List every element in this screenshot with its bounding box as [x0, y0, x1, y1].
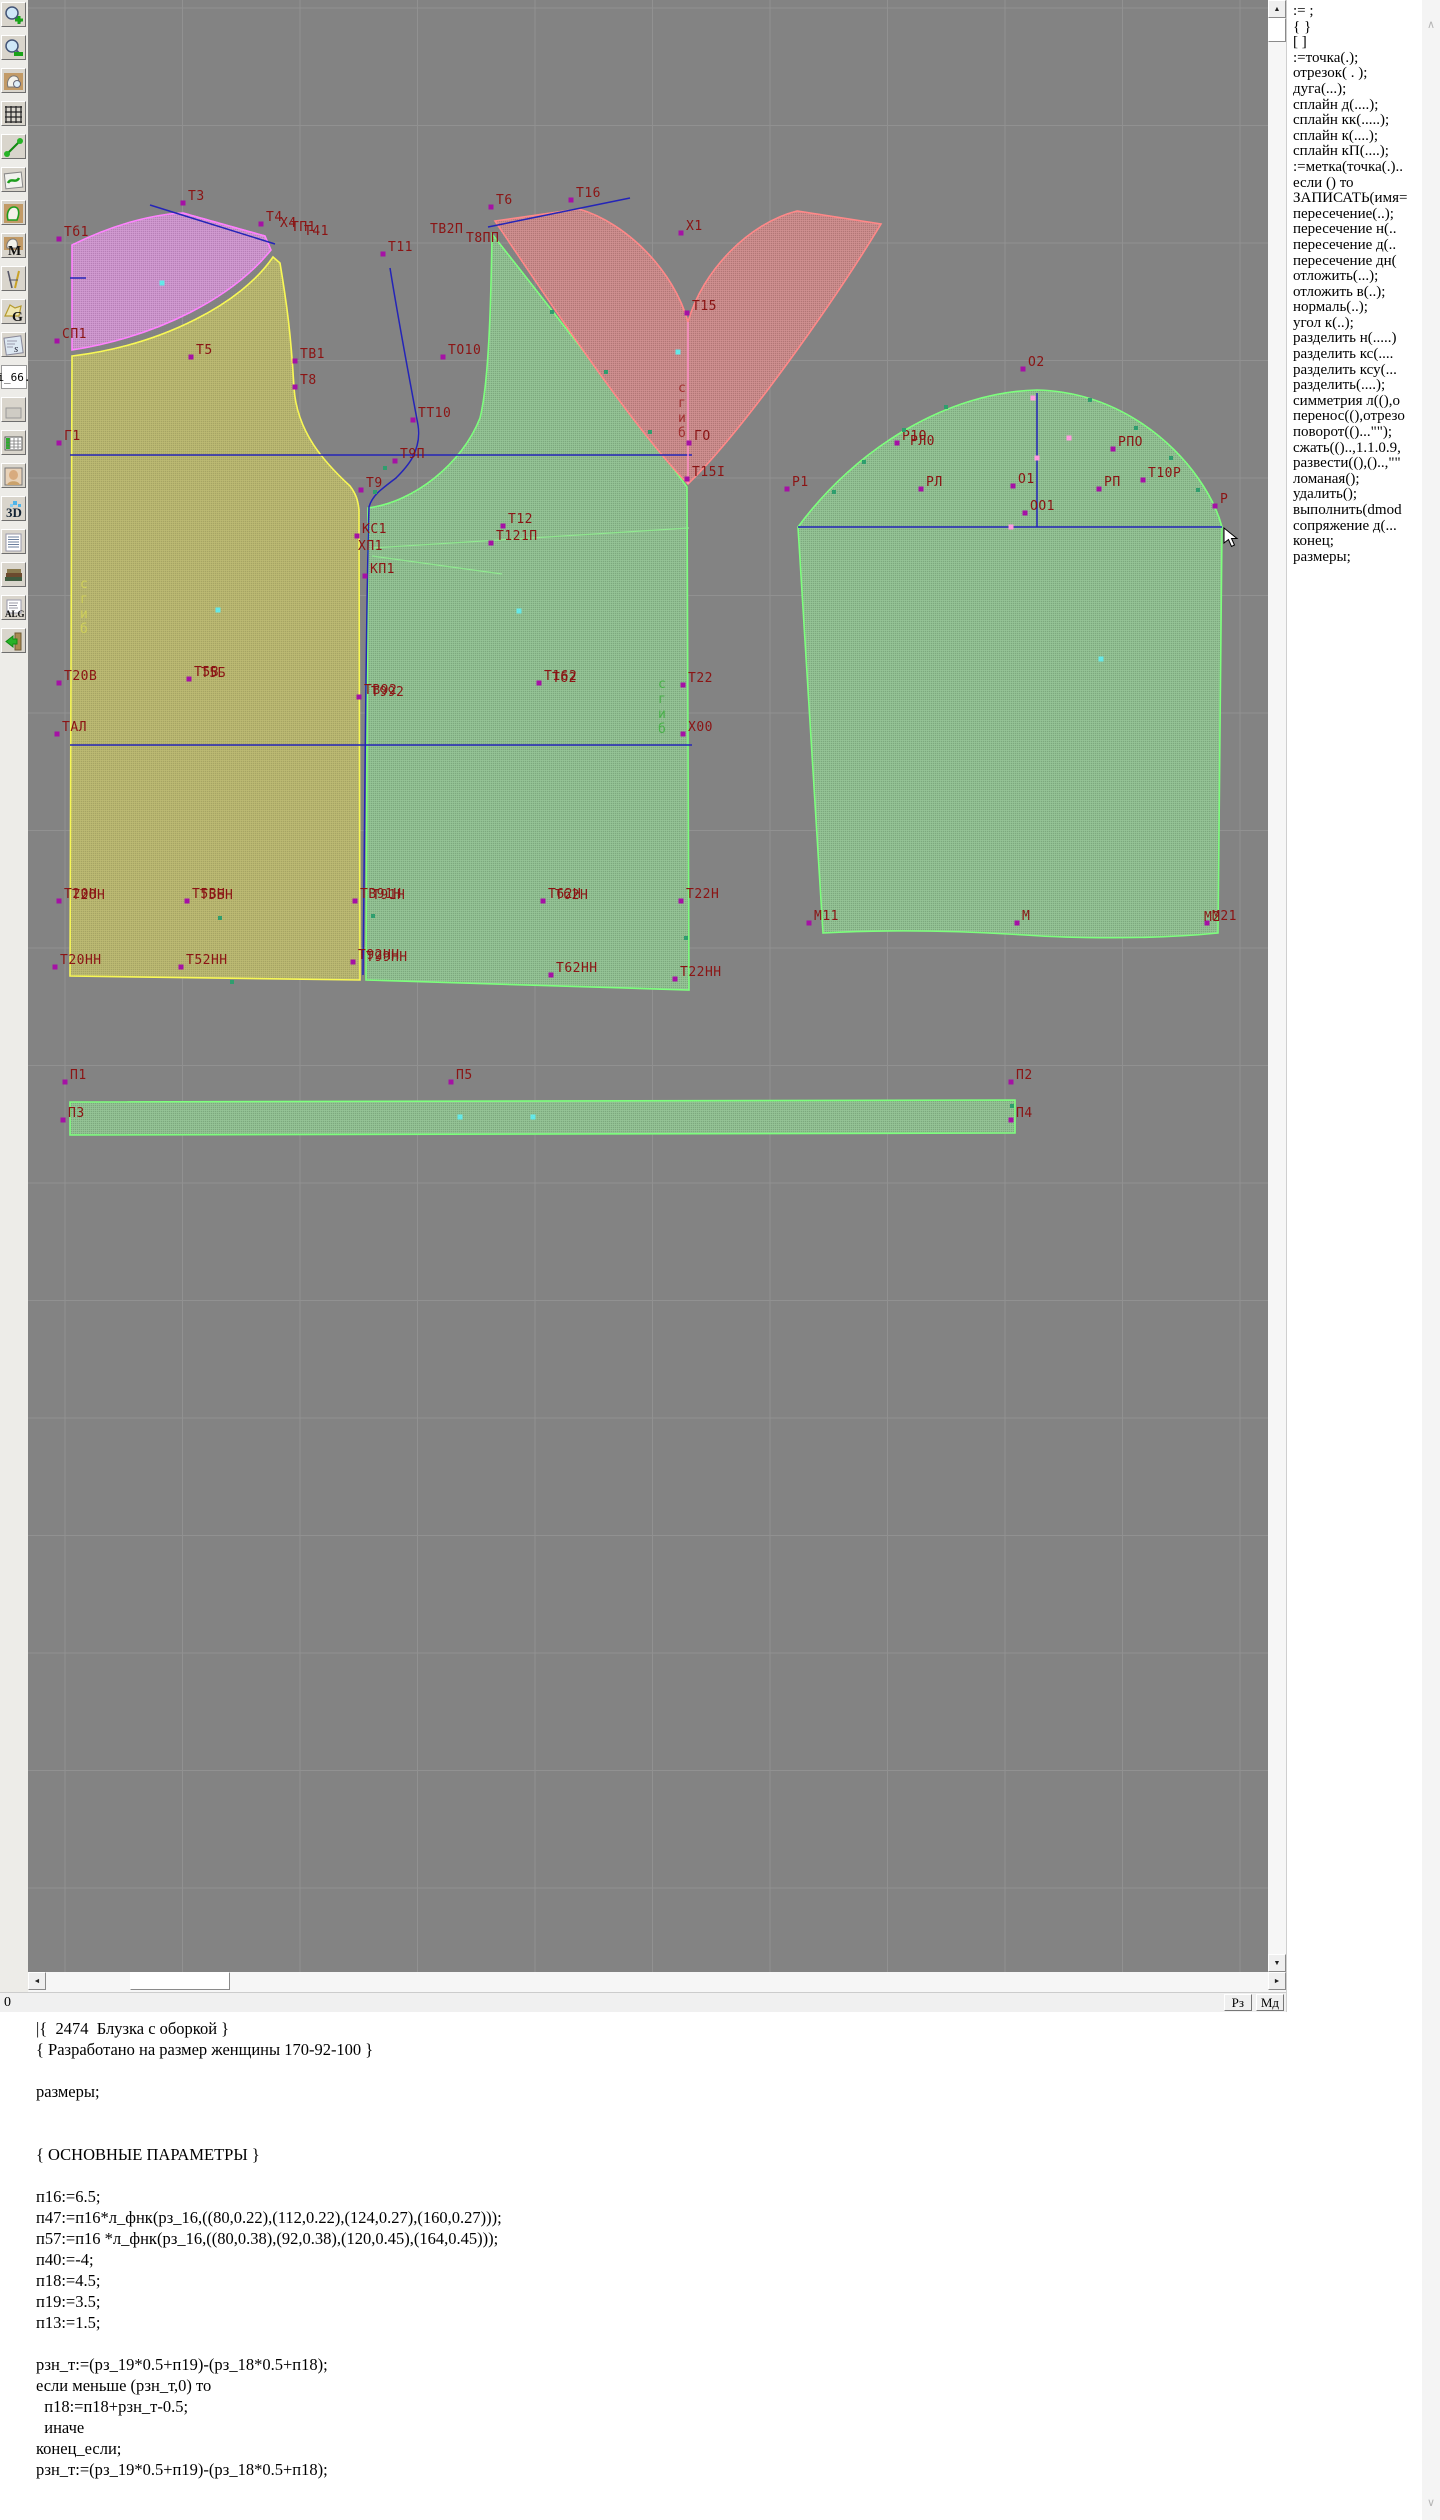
app-window: { "colors":{ "canvas_bg":"#838383","grid… [0, 0, 1440, 2520]
point-marker [807, 921, 812, 926]
point-marker [687, 441, 692, 446]
svg-text:3D: 3D [6, 505, 22, 520]
point-marker [673, 977, 678, 982]
point-marker [676, 350, 681, 355]
point-marker [1021, 367, 1026, 372]
point-label: Т15 [692, 299, 717, 314]
command-item[interactable]: перенос((),отрезо [1293, 409, 1422, 425]
point-label: Т5Б [201, 666, 226, 681]
command-item[interactable]: { } [1293, 20, 1422, 36]
point-label: Т9 [366, 476, 383, 491]
vscroll-thumb[interactable] [1268, 18, 1286, 42]
point-marker [458, 1115, 463, 1120]
code-line: п18:=п18+рзн_т-0.5; [36, 2396, 1422, 2417]
point-marker [1213, 504, 1218, 509]
point-marker [218, 916, 222, 920]
point-label: Т11 [388, 240, 413, 255]
fold-label: сгиб [80, 577, 88, 637]
point-marker [373, 490, 377, 494]
code-line: иначе [36, 2417, 1422, 2438]
point-label: Т8 [300, 373, 317, 388]
chevron-up-icon[interactable]: ∧ [1422, 18, 1440, 31]
toolbar-index-label: i_66. [1, 365, 27, 389]
point-label: ТАЛ [62, 720, 87, 735]
command-item[interactable]: развести((),()..,"" [1293, 456, 1422, 472]
code-line [36, 2165, 1422, 2186]
toolbar-button-measure-icon[interactable] [1, 134, 26, 159]
code-line: конец_если; [36, 2438, 1422, 2459]
command-item[interactable]: выполнить(dmod [1293, 503, 1422, 519]
point-marker [293, 359, 298, 364]
code-line: размеры; [36, 2081, 1422, 2102]
point-marker [1169, 456, 1173, 460]
point-label: ТВ1 [300, 347, 325, 362]
toolbar-button-portrait-icon[interactable] [1, 463, 26, 488]
toolbar-button-ruler-s-icon[interactable]: s [1, 332, 26, 357]
point-marker [919, 487, 924, 492]
piece-ruffle-strip[interactable] [70, 1100, 1015, 1135]
point-label: Т9П [400, 447, 425, 462]
point-label: П3 [68, 1106, 85, 1121]
point-marker [449, 1080, 454, 1085]
point-marker [1009, 1118, 1014, 1123]
point-marker [187, 677, 192, 682]
mouse-cursor-icon [1224, 528, 1237, 547]
command-item[interactable]: [ ] [1293, 35, 1422, 51]
toolbar-button-pattern-sheet-icon[interactable] [1, 68, 26, 93]
point-marker [1023, 511, 1028, 516]
point-marker [55, 339, 60, 344]
code-editor[interactable]: |{ 2474 Блузка с оборкой }{ Разработано … [0, 2012, 1422, 2520]
point-marker [1099, 657, 1104, 662]
point-marker [685, 477, 690, 482]
command-item[interactable]: отложить(...); [1293, 269, 1422, 285]
canvas-hscrollbar[interactable]: ◄ ► [28, 1972, 1286, 1992]
command-item[interactable]: пересечение д(.. [1293, 238, 1422, 254]
point-marker [55, 732, 60, 737]
point-label: ТВ2П [430, 222, 463, 237]
point-marker [353, 899, 358, 904]
status-value: 0 [4, 1995, 11, 2011]
command-item[interactable]: сплайн кП(....); [1293, 144, 1422, 160]
command-item[interactable]: нормаль(..); [1293, 300, 1422, 316]
point-marker [1015, 921, 1020, 926]
point-label: Т52НН [186, 953, 228, 968]
code-line: п16:=6.5; [36, 2186, 1422, 2207]
point-marker [681, 732, 686, 737]
command-item[interactable]: отложить в(..); [1293, 285, 1422, 301]
code-line [36, 2060, 1422, 2081]
point-marker [1134, 426, 1138, 430]
point-label: П4 [1016, 1106, 1033, 1121]
command-item[interactable]: поворот(()...""); [1293, 425, 1422, 441]
point-label: Р1 [792, 475, 809, 490]
command-item[interactable]: симметрия л((),о [1293, 394, 1422, 410]
panel-scrollbar[interactable]: ∧ ∨ [1422, 0, 1440, 2520]
point-marker [383, 466, 387, 470]
point-marker [537, 681, 542, 686]
point-marker [1009, 525, 1014, 530]
point-label: Т16 [576, 186, 601, 201]
point-label: Т20В [64, 669, 97, 684]
point-label: П2 [1016, 1068, 1033, 1083]
point-label: Т41 [304, 224, 329, 239]
point-marker [1196, 488, 1200, 492]
point-label: Т992 [371, 685, 404, 700]
scroll-right-icon[interactable]: ► [1268, 1972, 1286, 1990]
point-label: ХП1 [358, 539, 383, 554]
code-line: { Разработано на размер женщины 170-92-1… [36, 2039, 1422, 2060]
point-marker [1031, 396, 1036, 401]
point-label: Т12 [508, 512, 533, 527]
code-line: п57:=п16 *л_фнк(рз_16,((80,0.38),(92,0.3… [36, 2228, 1422, 2249]
command-item[interactable]: отрезок( . ); [1293, 66, 1422, 82]
point-marker [1097, 487, 1102, 492]
piece-back-bodice[interactable] [70, 257, 360, 980]
toolbar: MGsi_66.3DALG [1, 2, 28, 661]
point-marker [550, 310, 554, 314]
scroll-down-icon[interactable]: ▼ [1268, 1954, 1286, 1972]
command-item[interactable]: удалить(); [1293, 487, 1422, 503]
point-marker [57, 441, 62, 446]
code-line: п18:=4.5; [36, 2270, 1422, 2291]
point-marker [944, 405, 948, 409]
command-item[interactable]: разделить кс(.... [1293, 347, 1422, 363]
command-item[interactable]: пересечение(..); [1293, 207, 1422, 223]
code-line: |{ 2474 Блузка с оборкой } [36, 2018, 1422, 2039]
point-label: Т62НН [556, 961, 598, 976]
point-label: Х1 [686, 219, 703, 234]
point-marker [1067, 436, 1072, 441]
point-label: ТТ10 [418, 406, 451, 421]
toolbar-button-alg-icon[interactable]: ALG [1, 595, 26, 620]
point-label: П1 [70, 1068, 87, 1083]
point-label: Т15І [692, 465, 725, 480]
point-label: ОО1 [1030, 499, 1055, 514]
point-label: ГО [694, 429, 711, 444]
point-marker [685, 311, 690, 316]
command-item[interactable]: :=точка(.); [1293, 51, 1422, 67]
point-marker [785, 487, 790, 492]
point-label: Т2ОН [72, 888, 105, 903]
point-marker [381, 252, 386, 257]
fold-label: сгиб [678, 381, 686, 441]
svg-text:G: G [12, 310, 23, 323]
point-label: РПО [1118, 435, 1143, 450]
point-label: М [1022, 909, 1030, 924]
point-marker [501, 524, 506, 529]
code-line: рзн_т:=(рз_19*0.5+п19)-(рз_18*0.5+п18); [36, 2354, 1422, 2375]
point-marker [1011, 484, 1016, 489]
point-label: РП [1104, 475, 1121, 490]
scroll-left-icon[interactable]: ◄ [28, 1972, 46, 1990]
point-label: Тб1 [64, 225, 89, 240]
point-marker [648, 430, 652, 434]
code-line [36, 2333, 1422, 2354]
point-marker [61, 1118, 66, 1123]
point-marker [1010, 1104, 1014, 1108]
point-marker [185, 899, 190, 904]
point-marker [517, 609, 522, 614]
point-marker [355, 534, 360, 539]
mode-button-Рз[interactable]: Рз [1224, 1994, 1252, 2011]
code-line: п13:=1.5; [36, 2312, 1422, 2333]
point-marker [1111, 447, 1116, 452]
point-marker [681, 683, 686, 688]
point-marker [259, 222, 264, 227]
point-label: Х00 [688, 720, 713, 735]
point-marker [541, 899, 546, 904]
code-line: п40:=-4; [36, 2249, 1422, 2270]
point-marker [684, 936, 688, 940]
point-marker [411, 418, 416, 423]
pattern-canvas[interactable]: Т3Т4Х4ТП1Т41Т6Т16Тб1ТВ2ПТ8ППТ11Х1Т15СП1Т… [28, 0, 1268, 1972]
point-label: Т10Р [1148, 466, 1181, 481]
code-line [36, 2123, 1422, 2144]
point-label: М11 [814, 909, 839, 924]
point-marker [1088, 398, 1092, 402]
toolbar-button-table-icon[interactable] [1, 430, 26, 455]
command-item[interactable]: разделить ксу(... [1293, 363, 1422, 379]
status-bar: 0 РзМд [0, 1992, 1286, 2012]
code-line: рзн_т:=(рз_19*0.5+п19)-(рз_18*0.5+п18); [36, 2459, 1422, 2480]
svg-text:M: M [8, 244, 21, 257]
point-marker [53, 965, 58, 970]
point-marker [179, 965, 184, 970]
point-label: КС1 [362, 522, 387, 537]
point-label: М2 [1204, 910, 1221, 925]
command-item[interactable]: угол к(..); [1293, 316, 1422, 332]
point-marker [604, 370, 608, 374]
command-item[interactable]: если () то [1293, 176, 1422, 192]
point-marker [57, 681, 62, 686]
point-label: Т99НН [366, 950, 408, 965]
point-marker [549, 973, 554, 978]
point-marker [1141, 478, 1146, 483]
point-label: Т5 [196, 343, 213, 358]
point-marker [357, 695, 362, 700]
command-item[interactable]: пересечение н(.. [1293, 222, 1422, 238]
point-marker [363, 574, 368, 579]
point-marker [679, 231, 684, 236]
toolbar-button-list-icon[interactable] [1, 529, 26, 554]
point-marker [181, 201, 186, 206]
point-label: ТО10 [448, 343, 481, 358]
command-item[interactable]: пересечение дн( [1293, 254, 1422, 270]
point-marker [441, 355, 446, 360]
point-label: РЛ [926, 475, 943, 490]
point-label: Р [1220, 492, 1228, 507]
point-marker [1035, 456, 1040, 461]
point-label: Т8ПП [466, 231, 499, 246]
point-marker [359, 488, 364, 493]
point-label: Т22НН [680, 965, 722, 980]
command-item[interactable]: := ; [1293, 4, 1422, 20]
point-label: Т22Н [686, 887, 719, 902]
command-panel: := ;{ }[ ]:=точка(.);отрезок( . );дуга(.… [1286, 0, 1422, 2012]
toolbar-button-zoom-out-icon[interactable] [1, 35, 26, 60]
scroll-up-icon[interactable]: ▲ [1268, 0, 1286, 18]
command-item[interactable]: сжать(()..,1.1.0.9, [1293, 441, 1422, 457]
svg-text:ALG: ALG [5, 609, 24, 619]
point-label: Т121П [496, 529, 538, 544]
command-item[interactable]: ЗАПИСАТЬ(имя= [1293, 191, 1422, 207]
point-marker [1009, 1080, 1014, 1085]
point-label: КП1 [370, 562, 395, 577]
point-marker [393, 459, 398, 464]
point-label: РЛ0 [910, 434, 935, 449]
toolbar-button-pattern-m-icon[interactable]: M [1, 233, 26, 258]
point-marker [57, 899, 62, 904]
command-item[interactable]: конец; [1293, 534, 1422, 550]
point-marker [189, 355, 194, 360]
toolbar-button-exit-icon[interactable] [1, 628, 26, 653]
toolbar-button-drafting-tools-icon[interactable] [1, 266, 26, 291]
fold-label: сгиб [658, 677, 666, 737]
command-item[interactable]: сопряжение д(... [1293, 519, 1422, 535]
toolbar-button-zoom-in-icon[interactable] [1, 2, 26, 27]
command-item[interactable]: :=метка(точка(.).. [1293, 160, 1422, 176]
code-line: если меньше (рзн_т,0) то [36, 2375, 1422, 2396]
point-marker [902, 428, 906, 432]
point-label: СП1 [62, 327, 87, 342]
command-item[interactable]: размеры; [1293, 550, 1422, 566]
point-label: П5 [456, 1068, 473, 1083]
point-label: Т3 [188, 189, 205, 204]
toolbar-button-pattern-outline-icon[interactable] [1, 200, 26, 225]
point-label: Тб2 [552, 671, 577, 686]
toolbar-button-spacer-icon[interactable] [1, 397, 26, 422]
mode-buttons: РзМд [1220, 1994, 1284, 2012]
point-marker [293, 385, 298, 390]
toolbar-button-sketch-sheet-icon[interactable] [1, 167, 26, 192]
code-line: п19:=3.5; [36, 2291, 1422, 2312]
command-item[interactable]: разделить(....); [1293, 378, 1422, 394]
command-item[interactable]: разделить н(.....) [1293, 331, 1422, 347]
point-marker [57, 237, 62, 242]
pattern-drawing: Т3Т4Х4ТП1Т41Т6Т16Тб1ТВ2ПТ8ППТ11Х1Т15СП1Т… [28, 0, 1268, 1972]
canvas-vscrollbar[interactable]: ▲ ▼ [1268, 0, 1286, 1972]
svg-text:s: s [14, 343, 18, 355]
point-label: О1 [1018, 472, 1035, 487]
point-marker [489, 205, 494, 210]
point-marker [531, 1115, 536, 1120]
code-line: { ОСНОВНЫЕ ПАРАМЕТРЫ } [36, 2144, 1422, 2165]
point-label: Т91Н [372, 888, 405, 903]
command-item[interactable]: сплайн к(....); [1293, 129, 1422, 145]
point-label: Т6 [496, 193, 513, 208]
point-marker [63, 1080, 68, 1085]
toolbar-button-books-icon[interactable] [1, 562, 26, 587]
point-marker [679, 899, 684, 904]
toolbar-button-3d-icon[interactable]: 3D [1, 496, 26, 521]
point-marker [832, 490, 836, 494]
point-marker [489, 541, 494, 546]
command-item[interactable]: сплайн кк(.....); [1293, 113, 1422, 129]
point-label: О2 [1028, 355, 1045, 370]
command-item[interactable]: сплайн д(....); [1293, 98, 1422, 114]
code-line: п47:=п16*л_фнк(рз_16,((80,0.22),(112,0.2… [36, 2207, 1422, 2228]
point-marker [371, 914, 375, 918]
point-marker [569, 198, 574, 203]
point-marker [230, 980, 234, 984]
command-item[interactable]: ломаная(); [1293, 472, 1422, 488]
point-marker [216, 608, 221, 613]
point-label: Т20НН [60, 953, 102, 968]
mode-button-Мд[interactable]: Мд [1256, 1994, 1284, 2011]
command-item[interactable]: дуга(...); [1293, 82, 1422, 98]
point-label: Т5БН [200, 888, 233, 903]
toolbar-button-pattern-g-icon[interactable]: G [1, 299, 26, 324]
point-marker [160, 281, 165, 286]
point-marker [862, 460, 866, 464]
point-marker [351, 960, 356, 965]
point-label: Г1 [64, 429, 81, 444]
chevron-down-icon[interactable]: ∨ [1422, 2496, 1440, 2509]
hscroll-thumb[interactable] [130, 1972, 230, 1990]
point-label: Т22 [688, 671, 713, 686]
point-label: Тб2Н [555, 888, 588, 903]
code-line [36, 2102, 1422, 2123]
point-marker [895, 441, 900, 446]
toolbar-button-grid-icon[interactable] [1, 101, 26, 126]
